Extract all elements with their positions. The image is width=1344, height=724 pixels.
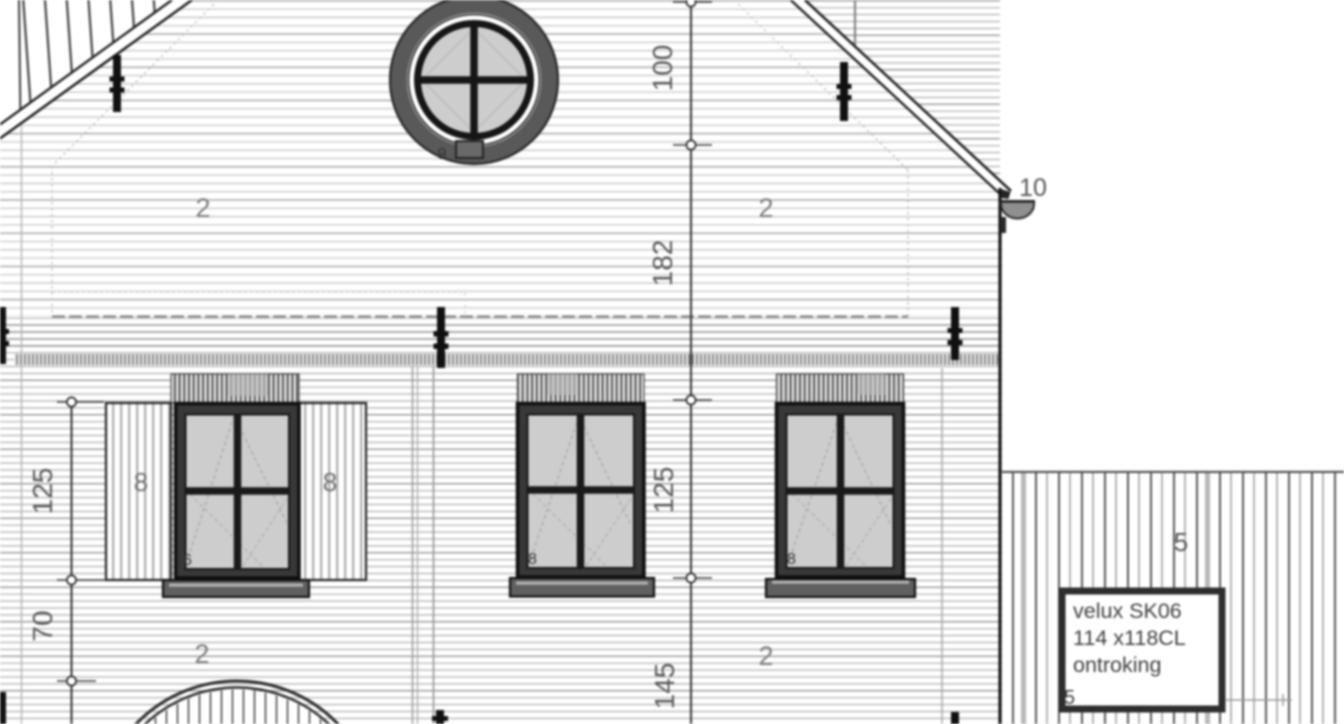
svg-text:8: 8	[323, 467, 337, 497]
svg-text:145: 145	[649, 663, 680, 710]
svg-text:2: 2	[195, 193, 210, 223]
svg-text:125: 125	[648, 467, 679, 514]
svg-text:8: 8	[787, 551, 796, 568]
svg-text:10: 10	[1019, 174, 1047, 202]
svg-text:2: 2	[758, 193, 773, 223]
svg-text:70: 70	[27, 610, 58, 641]
svg-text:8: 8	[134, 467, 148, 497]
svg-text:6: 6	[183, 552, 192, 569]
svg-text:velux SK06: velux SK06	[1073, 599, 1182, 623]
svg-text:2: 2	[194, 639, 209, 669]
svg-text:9: 9	[438, 146, 447, 163]
svg-text:ontroking: ontroking	[1073, 653, 1161, 677]
svg-text:100: 100	[647, 45, 678, 92]
svg-text:5: 5	[1174, 527, 1188, 557]
svg-text:125: 125	[27, 468, 58, 515]
svg-text:114 x118CL: 114 x118CL	[1073, 626, 1186, 650]
svg-text:182: 182	[647, 240, 678, 287]
svg-text:8: 8	[528, 551, 537, 568]
svg-text:2: 2	[758, 641, 773, 671]
svg-text:5: 5	[1064, 687, 1075, 709]
